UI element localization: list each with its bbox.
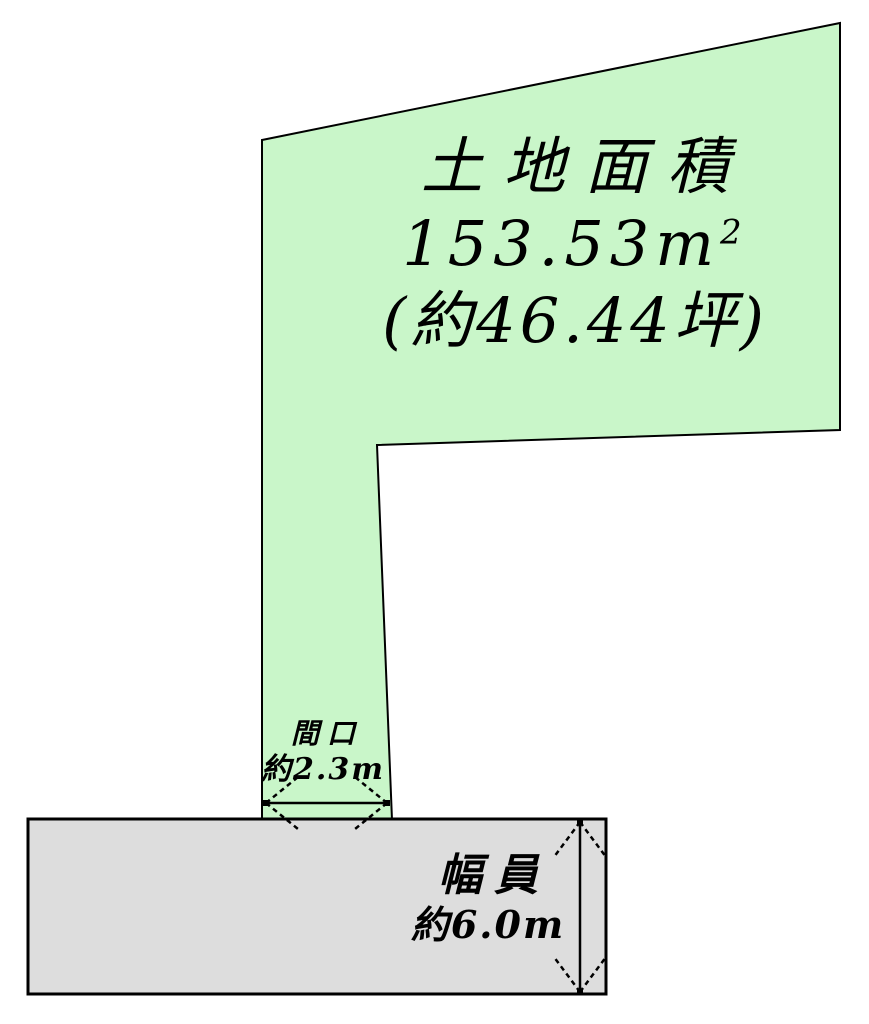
frontage-title: 間口: [248, 716, 398, 752]
land-area-label: 土地面積 153.53m2 (約46.44坪): [290, 128, 860, 359]
land-plot-diagram: 土地面積 153.53m2 (約46.44坪) 間口 約2.3m 幅員 約6.0…: [0, 0, 869, 1024]
frontage-value: 約2.3m: [248, 752, 398, 788]
land-area-sqm: 153.53m2: [290, 205, 860, 282]
land-area-value: 153.53: [402, 207, 655, 280]
land-area-unit: m: [655, 207, 720, 280]
road-width-label: 幅員 約6.0m: [378, 850, 598, 948]
road-width-title: 幅員: [378, 850, 598, 902]
road-width-value: 約6.0m: [378, 902, 598, 948]
land-area-title: 土地面積: [290, 128, 860, 205]
land-area-tsubo: (約46.44坪): [290, 282, 860, 359]
frontage-label: 間口 約2.3m: [248, 716, 398, 788]
land-area-unit-exponent: 2: [720, 212, 748, 252]
